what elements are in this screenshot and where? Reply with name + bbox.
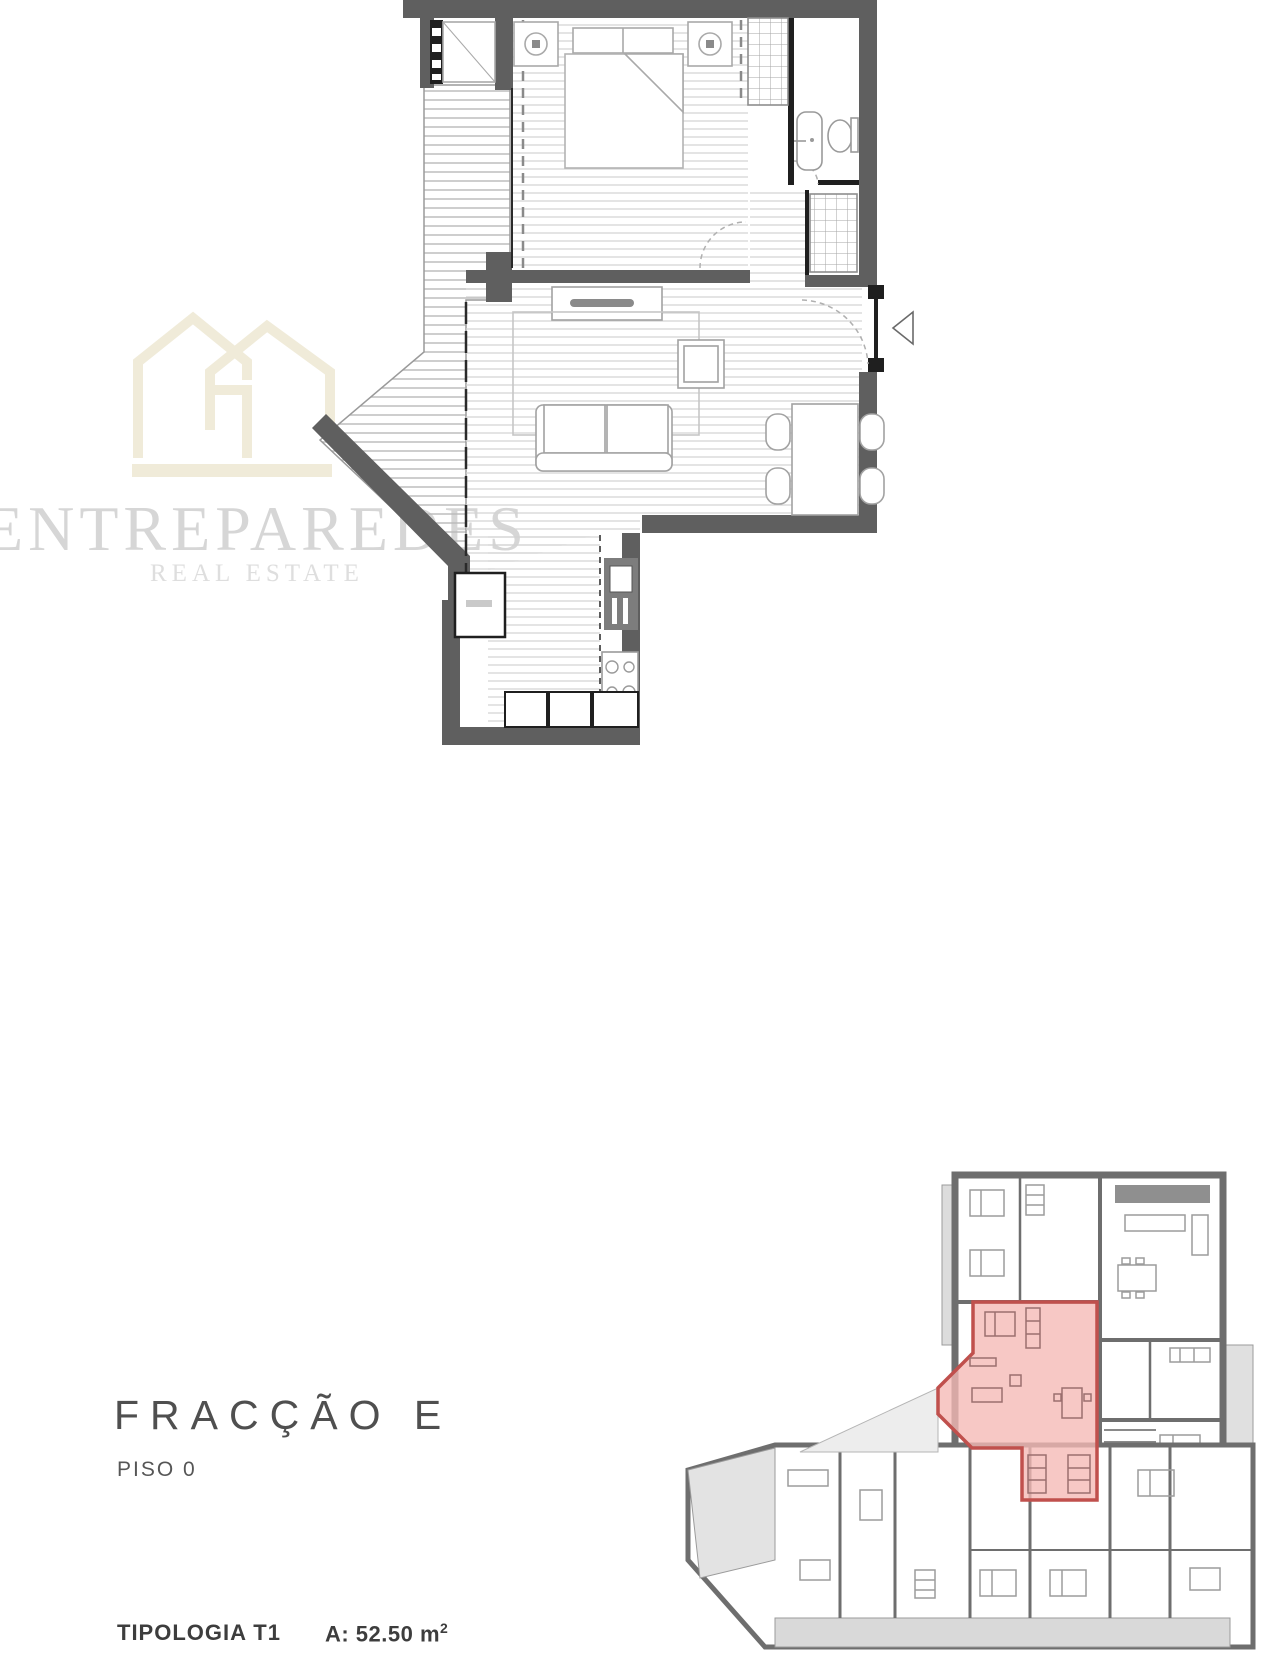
hall-floor bbox=[750, 190, 805, 283]
toilet-tank bbox=[851, 118, 858, 152]
dining-chair bbox=[766, 414, 790, 450]
apartment-floor-plan bbox=[0, 0, 1280, 800]
wardrobe bbox=[748, 18, 788, 105]
toilet bbox=[828, 120, 852, 152]
dining-chair bbox=[860, 414, 884, 450]
dining-table bbox=[792, 404, 858, 515]
floor-label: PISO 0 bbox=[117, 1458, 197, 1482]
typology-label: TIPOLOGIA T1 bbox=[117, 1620, 281, 1647]
dining-chair bbox=[860, 468, 884, 504]
entry-arrow-marker bbox=[893, 312, 913, 344]
brochure-page: ENTREPAREDES REAL ESTATE bbox=[0, 0, 1280, 1665]
overview-deck bbox=[800, 1388, 938, 1452]
building-overview-plan bbox=[670, 1090, 1280, 1665]
area-superscript: 2 bbox=[440, 1620, 448, 1636]
dining-chair bbox=[766, 468, 790, 504]
typology-row: TIPOLOGIA T1 A: 52.50 m2 bbox=[117, 1620, 448, 1647]
kitchen-cabinets bbox=[505, 692, 638, 727]
overview-lower-wing bbox=[688, 1445, 1253, 1647]
laundry-closet bbox=[810, 194, 857, 272]
area-value: A: 52.50 m bbox=[325, 1621, 440, 1646]
fraction-label: FRACÇÃO E bbox=[114, 1392, 452, 1439]
tv bbox=[570, 299, 634, 307]
area-label: A: 52.50 m2 bbox=[325, 1620, 448, 1647]
